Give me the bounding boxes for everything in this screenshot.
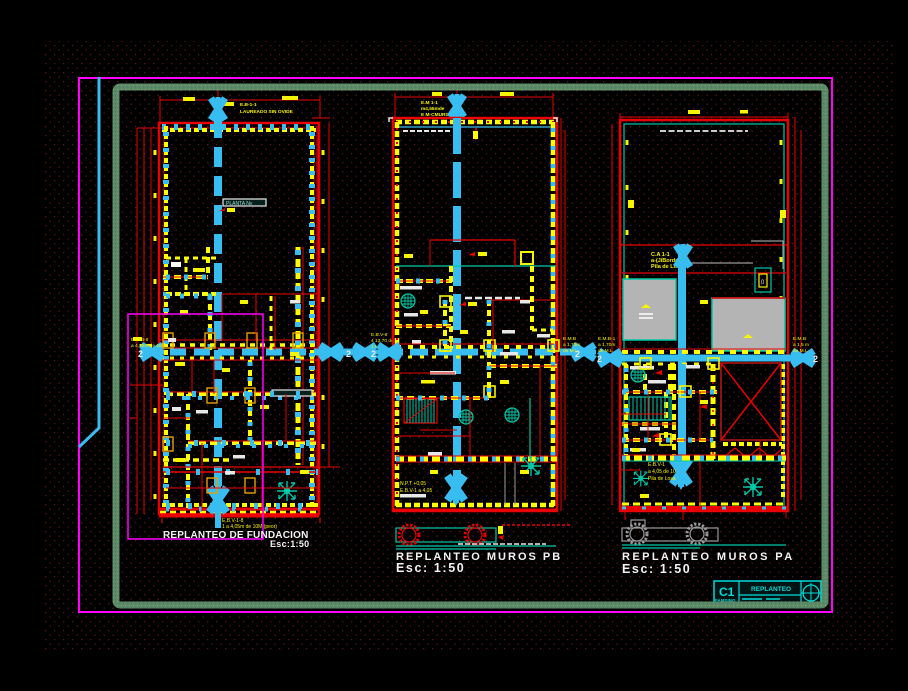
svg-text:E.M.B-8: E.M.B-8 (131, 337, 149, 343)
svg-text:a 1,70m: a 1,70m (598, 342, 615, 348)
svg-text:a 4,05m de 1M.L: a 4,05m de 1M.L (131, 343, 167, 349)
svg-text:REPLANTEO: REPLANTEO (751, 586, 791, 593)
svg-text:2: 2 (371, 349, 376, 359)
svg-text:2: 2 (346, 349, 351, 359)
svg-text:4 13,70 de: 4 13,70 de (371, 338, 394, 344)
svg-text:E.B.V-1: E.B.V-1 (648, 462, 665, 468)
svg-text:E.M.B-1: E.M.B-1 (598, 336, 616, 342)
svg-text:E.M.B: E.M.B (563, 336, 576, 342)
svg-text:Pila de Losa: Pila de Losa (648, 476, 676, 482)
svg-text:N.P.T +0,05: N.P.T +0,05 (400, 481, 426, 487)
svg-text:Esc: 1:50: Esc: 1:50 (396, 561, 465, 575)
svg-text:de M.L: de M.L (563, 348, 578, 354)
svg-text:E.M.B: E.M.B (793, 336, 806, 342)
svg-text:de M.L: de M.L (598, 348, 613, 354)
svg-text:LAUREADO SIN OVIDE: LAUREADO SIN OVIDE (240, 109, 294, 115)
svg-text:PLANTA Nv: PLANTA Nv (226, 201, 253, 207)
svg-text:2: 2 (597, 354, 602, 364)
svg-text:m4,55mde: m4,55mde (421, 106, 445, 112)
svg-text:Esc: 1:50: Esc: 1:50 (622, 562, 691, 576)
svg-text:E.M 1-1: E.M 1-1 (421, 100, 438, 106)
svg-text:E.B.V-1 a 4,05: E.B.V-1 a 4,05 (400, 488, 432, 494)
svg-text:C1: C1 (719, 585, 735, 599)
svg-text:2: 2 (813, 354, 818, 364)
svg-text:E.B.V-8: E.B.V-8 (371, 332, 388, 338)
svg-text:2: 2 (138, 349, 143, 359)
svg-text:E.B-1-1: E.B-1-1 (240, 102, 257, 108)
svg-text:Esc:1:50: Esc:1:50 (270, 539, 309, 549)
svg-text:a 1,70m: a 1,70m (563, 342, 580, 348)
svg-text:a 4,05 de 10: a 4,05 de 10 (648, 469, 676, 475)
svg-text:a 1,5 m: a 1,5 m (793, 342, 809, 348)
svg-text:de M.L: de M.L (793, 348, 808, 354)
